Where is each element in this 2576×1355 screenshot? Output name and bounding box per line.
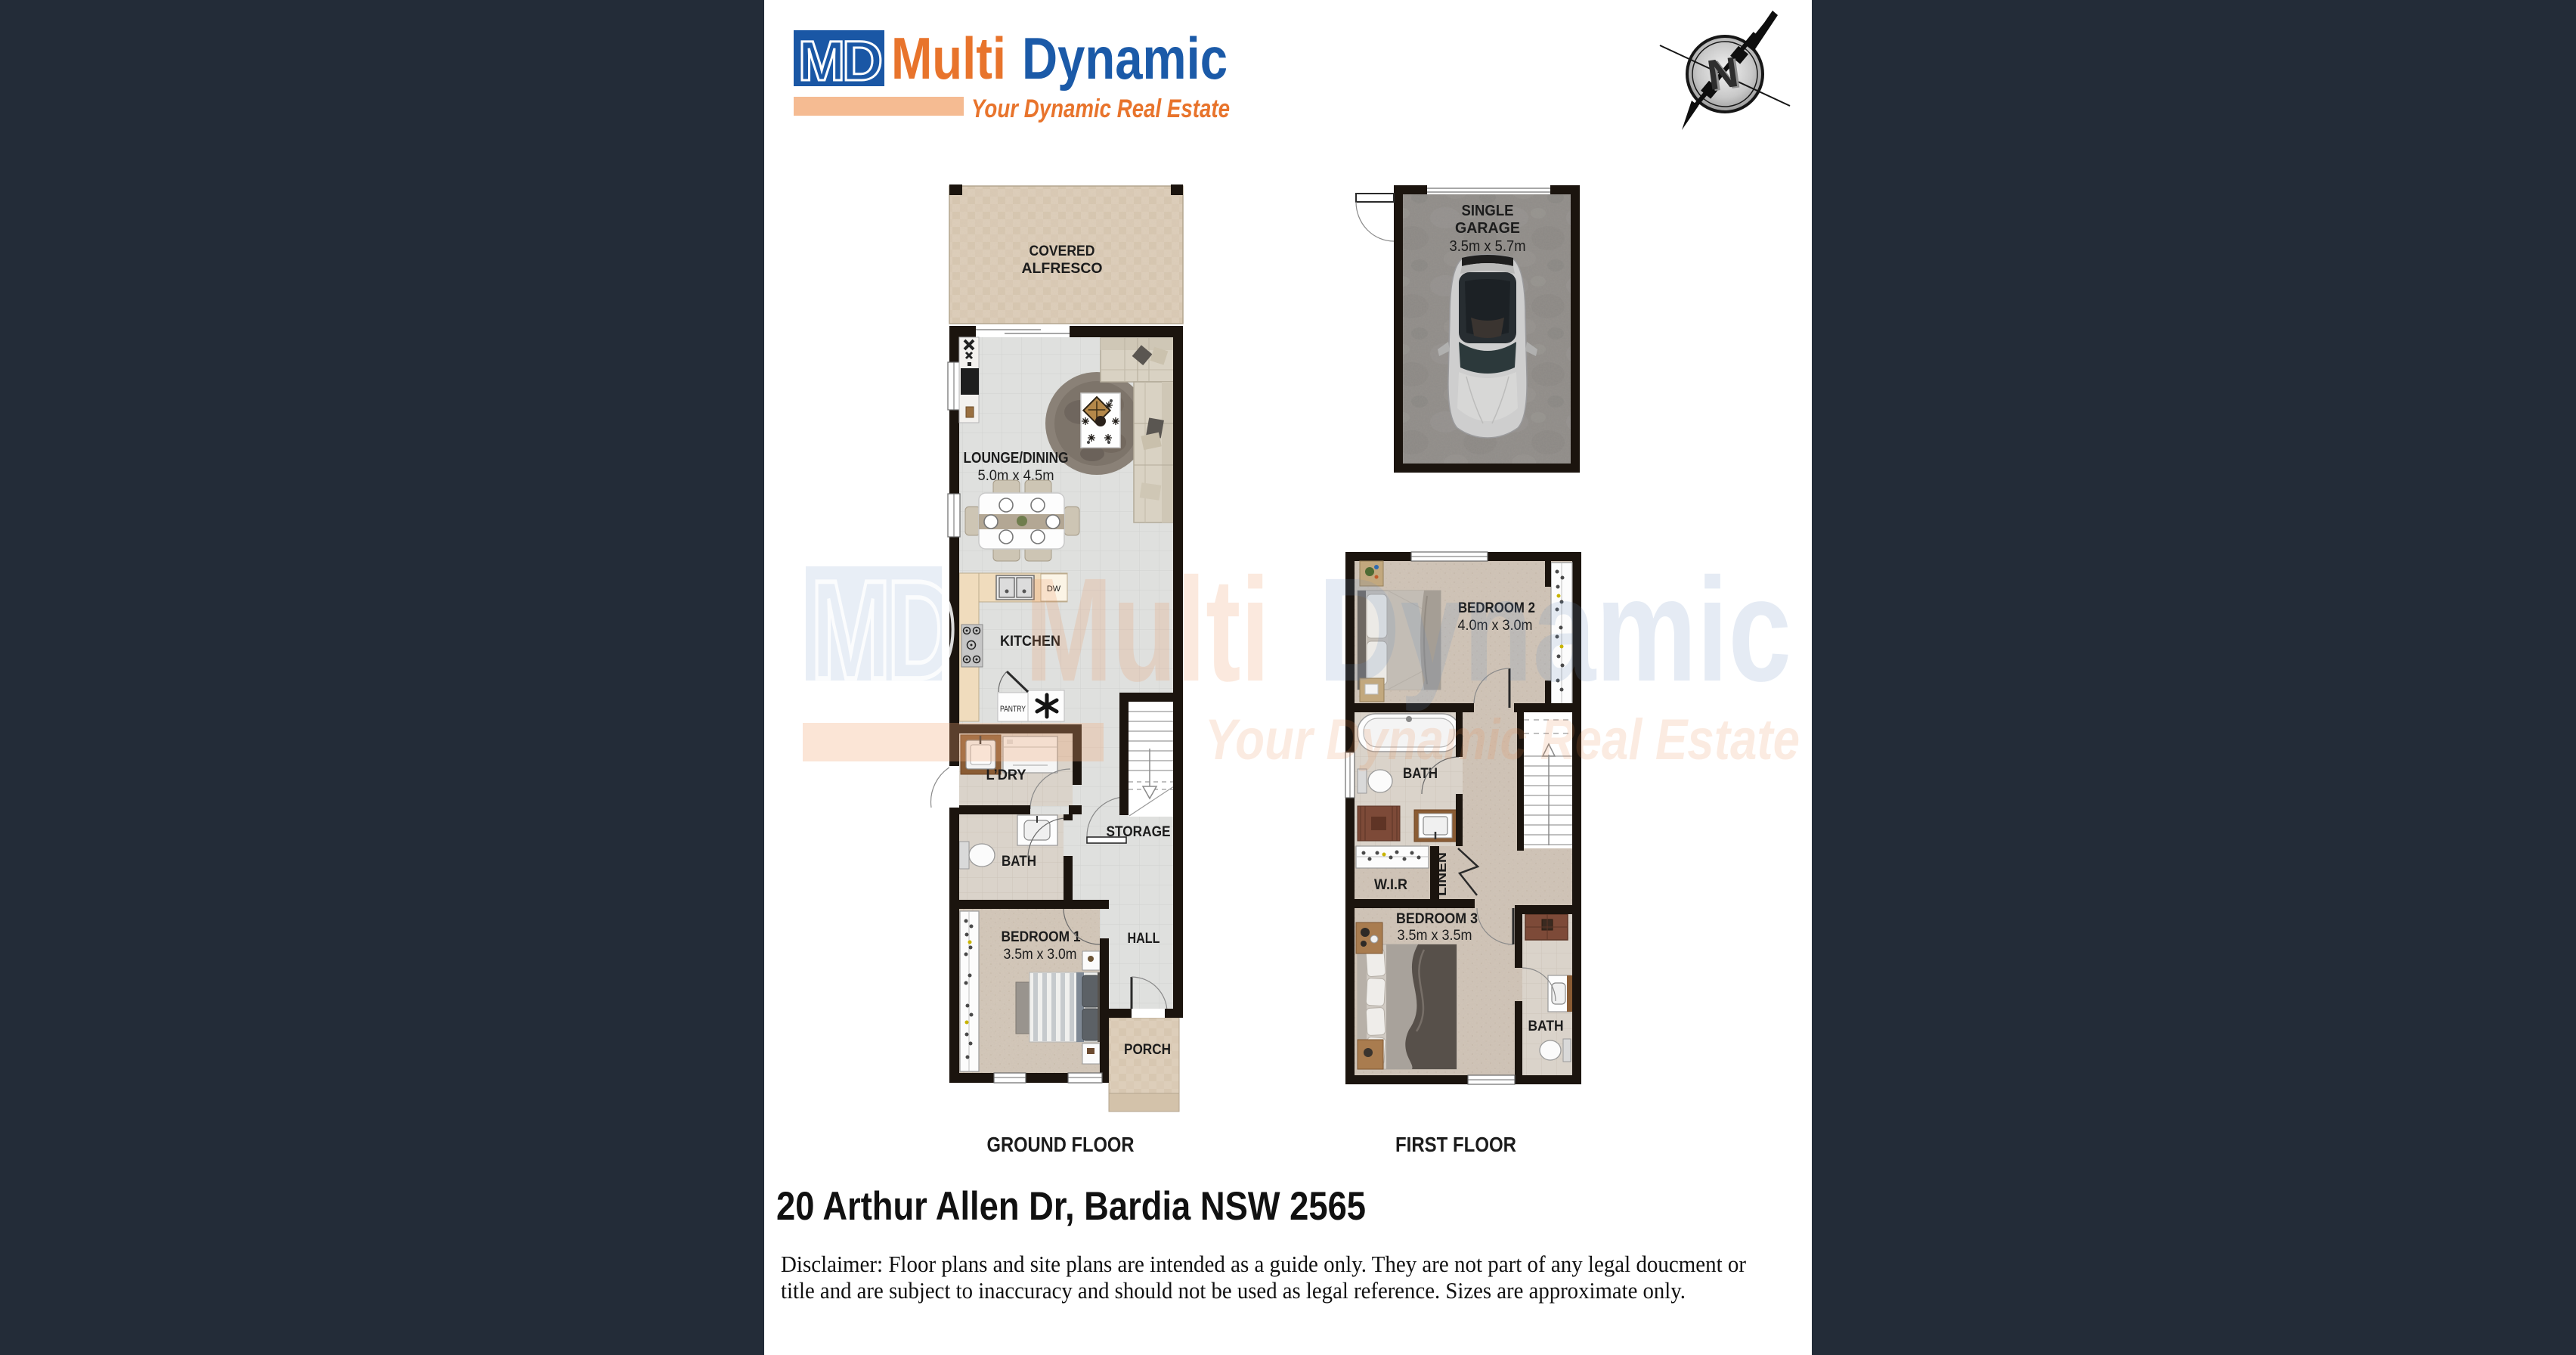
svg-text:Multi: Multi — [891, 25, 1006, 91]
svg-text:MD: MD — [810, 551, 953, 708]
svg-text:BEDROOM 1: BEDROOM 1 — [1002, 929, 1081, 945]
svg-text:W.I.R: W.I.R — [1374, 877, 1407, 893]
svg-text:PANTRY: PANTRY — [1000, 705, 1026, 714]
svg-text:Disclaimer: Floor plans and si: Disclaimer: Floor plans and site plans a… — [781, 1251, 1747, 1277]
svg-text:BEDROOM 3: BEDROOM 3 — [1396, 911, 1478, 927]
svg-text:Your Dynamic Real Estate: Your Dynamic Real Estate — [971, 95, 1230, 123]
svg-text:FIRST FLOOR: FIRST FLOOR — [1395, 1133, 1516, 1156]
svg-text:BATH: BATH — [1528, 1019, 1564, 1034]
svg-text:BATH: BATH — [1002, 854, 1036, 870]
svg-text:3.5m x 5.7m: 3.5m x 5.7m — [1450, 238, 1526, 255]
svg-text:LOUNGE/DINING: LOUNGE/DINING — [964, 450, 1069, 467]
svg-text:PORCH: PORCH — [1124, 1042, 1171, 1058]
svg-text:title and are subject to inacc: title and are subject to inaccuracy and … — [781, 1277, 1686, 1304]
svg-text:3.5m x 3.5m: 3.5m x 3.5m — [1398, 928, 1472, 944]
svg-text:Multi: Multi — [1025, 547, 1270, 712]
svg-text:MD: MD — [798, 29, 881, 92]
svg-text:GROUND FLOOR: GROUND FLOOR — [987, 1133, 1135, 1156]
svg-text:SINGLE: SINGLE — [1462, 203, 1514, 219]
svg-text:Your Dynamic Real Estate: Your Dynamic Real Estate — [1205, 708, 1800, 772]
svg-text:20 Arthur Allen Dr, Bardia NSW: 20 Arthur Allen Dr, Bardia NSW 2565 — [776, 1184, 1366, 1229]
svg-text:COVERED: COVERED — [1029, 243, 1095, 259]
svg-text:ALFRESCO: ALFRESCO — [1022, 261, 1103, 277]
svg-text:Dynamic: Dynamic — [1022, 25, 1228, 91]
svg-text:Dynamic: Dynamic — [1318, 547, 1791, 712]
svg-text:L’DRY: L’DRY — [986, 767, 1026, 783]
svg-text:HALL: HALL — [1128, 931, 1160, 947]
svg-text:GARAGE: GARAGE — [1455, 220, 1520, 237]
svg-text:STORAGE: STORAGE — [1107, 824, 1171, 840]
svg-text:3.5m x 3.0m: 3.5m x 3.0m — [1004, 947, 1077, 963]
